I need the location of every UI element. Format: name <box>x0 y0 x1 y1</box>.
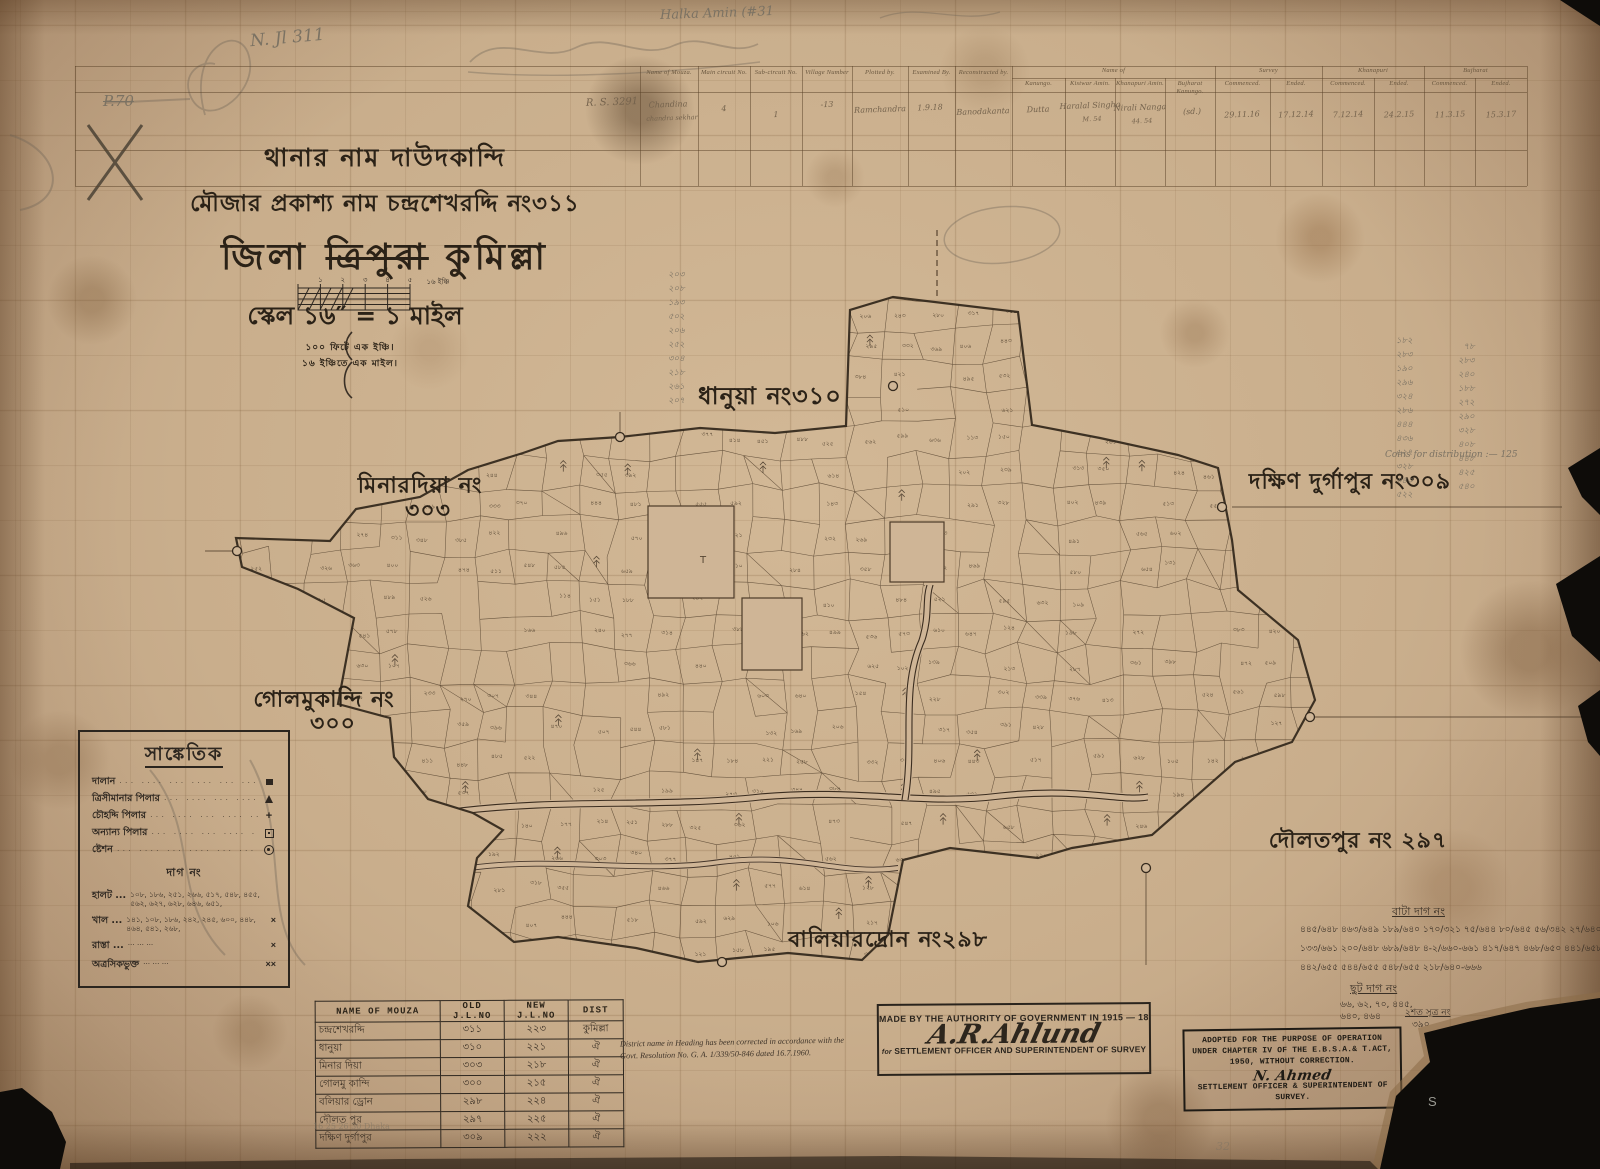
form-column-header: Sub-circuit No. <box>750 69 802 77</box>
form-entry: 24.2.15 <box>1384 109 1415 119</box>
form-column-header: Main circuit No. <box>698 69 750 77</box>
form-entry: 1 <box>773 110 778 119</box>
pencil-column-center: ২০৩২০৮১৯৩৫০২২০৬২৫২৩০৪২১৮২৬১২০৭ <box>668 268 685 408</box>
correction-note: District name in Heading has been correc… <box>620 1033 910 1063</box>
form-column-header: Bujharat Kanungo. <box>1165 80 1215 96</box>
legend-box: সাঙ্কেতিক দালান··· ···· ··· ···· ··· ···… <box>78 730 290 988</box>
form-rule <box>1475 78 1476 186</box>
form-rule <box>75 66 76 186</box>
form-column-header: Commenced. <box>1424 80 1475 88</box>
form-rule <box>1065 78 1066 186</box>
bata-dag-row: ১৩৩/৬৬১ ২০০/৬৪৮ ৬৮৯/৬৪৮ ৪-২/৬৬০-৬৬১ ৪১৭/… <box>1300 941 1600 956</box>
form-group-header: Survey <box>1215 67 1322 75</box>
title-block: থানার নাম দাউদকান্দি মৌজার প্রকাশ্য নাম … <box>175 138 595 371</box>
svg-text:৩: ৩ <box>363 276 368 284</box>
form-rule <box>1374 78 1375 186</box>
form-entry: 7.12.14 <box>1333 109 1364 119</box>
printers-row: 16 25 26 30 Dhaka <box>313 1122 390 1131</box>
svg-text:২: ২ <box>341 276 346 284</box>
form-entry: 29.11.16 <box>1224 109 1260 119</box>
form-group-header: Name of <box>1012 67 1215 75</box>
page-pencil-number: 32 <box>1216 1140 1230 1153</box>
form-rule <box>1270 78 1271 186</box>
legend-symbol-row: দালান··· ···· ··· ···· ··· ··· <box>92 775 276 789</box>
form-column-header: Reconstructed by. <box>955 69 1012 77</box>
form-column-header: Commenced. <box>1215 80 1270 88</box>
form-rule <box>698 66 699 186</box>
pencil-column-right-a: ১৮২২৮৩১৯০২৯৬৩২৪২৮৬৪৪৪৪৩৬৬২৭৩২৮৩৪৩৫২২ <box>1396 334 1413 502</box>
form-entry: 17.12.14 <box>1278 109 1314 119</box>
form-entry: Haralal Singha <box>1059 100 1120 111</box>
form-column-header: Ended. <box>1270 80 1322 88</box>
form-entry: 1.9.18 <box>917 103 943 113</box>
legend-symbol-row: ষ্টেশন··· ···· ··· ···· ··· ··· <box>92 843 276 857</box>
form-rule <box>640 66 641 186</box>
form-rule <box>802 66 803 186</box>
form-group-header: Khanapuri <box>1322 67 1424 75</box>
mouza-table-header: DIST <box>568 1000 623 1021</box>
svg-text:৪: ৪ <box>385 276 390 284</box>
form-entry: (sd.) <box>1183 107 1201 117</box>
form-entry: 11.3.15 <box>1435 109 1466 119</box>
legend-title: সাঙ্কেতিক <box>92 740 276 772</box>
form-entry: Chandina <box>648 99 687 109</box>
form-rule <box>75 92 1527 93</box>
legend-number-row: খাল ...১৪১, ১০৮, ১৮৬, ২৪২, ২৪৫, ৬০০, ৪৪৮… <box>92 915 276 933</box>
scale-note-2: ১৬ ইঞ্চিতে এক মাইল। <box>140 356 560 371</box>
bata-dag-row: ৪৪৫/৬৪৮ ৪৬৩/৬৪৯ ১৮৯/৬৪০ ১৭০/৩২১ ৭৫/৬৪৪ ৮… <box>1300 922 1600 937</box>
pencil-column-right-b: ৭৮২৮৩২৪০১৮৮২৭২২৯০৩২৮৪০৮৪৪৮৪২৫৫৪০ <box>1458 340 1475 494</box>
mouza-table-row: চন্দ্রশেখরদ্দি৩১১২২৩কুমিল্লা <box>315 1021 623 1041</box>
form-column-header: Kanungo. <box>1012 80 1065 88</box>
form-column-header: Khanapuri Amin. <box>1115 80 1165 88</box>
region-label: ধানুয়া নং৩১০ <box>698 378 842 418</box>
map-sheet: ১০০১৮৯২৭৮৩৬৭৫৪৫৬৩৪২৫২৩৪১৪৩০৫১৯৬০৮২২৬৪০৪৪… <box>0 0 1600 1169</box>
chhut-dag-row: ৬৪০, ৪৬৪ <box>1340 1009 1381 1024</box>
mouza-table-row: গোলমু কান্দি৩০০২১৫ঐ <box>316 1075 624 1095</box>
mouza-name: মৌজার প্রকাশ্য নাম চন্দ্রশেখরদ্দি নং৩১১ <box>175 185 595 224</box>
form-entry: 15.3.17 <box>1486 109 1517 119</box>
adoption-stamp: ADOPTED FOR THE PURPOSE OF OPERATION UND… <box>1182 1026 1402 1111</box>
mouza-table-row: বলিয়ার ড্রোন২৯৮২২৪ঐ <box>316 1093 624 1113</box>
legend-number-row: হালট ...১০৮, ১৮৬, ২৫১, ২৬৬, ৫১৭, ৫৪৮, ৪৫… <box>92 890 276 908</box>
plus-symbol: + <box>266 812 272 820</box>
p70-pencil-note: P.70 <box>103 92 134 110</box>
form-rule <box>750 66 751 186</box>
legend-symbol-row: চৌহদ্দি পিলার··· ···· ··· ···· ··· ···+ <box>92 809 276 823</box>
region-label: বালিয়ারদ্রোন নং২৯৮ <box>788 923 988 960</box>
mouza-table-row: ধানুয়া৩১০২২১ঐ <box>315 1039 623 1059</box>
halka-pencil-note: Halka Amin (#31 <box>660 4 774 23</box>
region-label: দক্ষিণ দুর্গাপুর নং৩০৯ <box>1249 465 1451 502</box>
form-column-header: Ended. <box>1374 80 1424 88</box>
form-column-header: Kistwar Amin. <box>1065 80 1115 88</box>
form-column-header: Ended. <box>1475 80 1527 88</box>
form-entry: M. 54 <box>1082 115 1101 124</box>
form-entry: Banodakanta <box>956 106 1010 117</box>
jl-pencil-note: N. Jl 311 <box>249 25 325 51</box>
region-label: দৌলতপুর নং ২৯৭ <box>1269 824 1448 861</box>
form-column-header: Commenced. <box>1322 80 1374 88</box>
form-column-header: Name of Mouza. <box>640 69 698 77</box>
authority-stamp: MADE BY THE AUTHORITY OF GOVERNMENT IN 1… <box>877 1002 1151 1076</box>
mouza-table-row: মিনার দিয়া৩০৩২১৮ঐ <box>315 1057 623 1077</box>
mouza-table-header: NAME OF MOUZA <box>315 1001 440 1023</box>
svg-text:৫: ৫ <box>408 276 413 284</box>
form-rule <box>908 66 909 186</box>
legend-number-row: অত্রসিকভুক্ত··· ··· ···×× <box>92 959 276 971</box>
form-group-header: Bujharat <box>1424 67 1527 75</box>
form-rule <box>1115 78 1116 186</box>
scale-bar: ১২৩৪৫১৬ ইঞ্চি <box>293 270 493 318</box>
form-entry: Ramchandra <box>854 104 906 115</box>
building-symbol <box>266 779 273 785</box>
form-column-header: Examined By. <box>908 69 955 77</box>
form-entry: 44. 54 <box>1132 117 1153 126</box>
legend-dag-header: দাগ নং <box>92 864 276 883</box>
sutra-note-value: ৩৯০ <box>1412 1017 1430 1032</box>
form-column-header: Village Number <box>802 69 852 77</box>
svg-text:১: ১ <box>318 276 323 284</box>
form-entry: Dutta <box>1026 105 1049 115</box>
legend-symbol-row: ত্রিসীমানার পিলার··· ···· ··· ···· ··· ·… <box>92 792 276 806</box>
region-label: ৩০৩ <box>405 494 451 531</box>
settlement-officer-signature: A.R.Ahlund <box>875 1018 1153 1051</box>
bata-dag-header: বাটা দাগ নং <box>1392 903 1445 922</box>
form-entry: 4 <box>721 104 726 113</box>
scale-note-1: ১০০ ফিটে এক ইঞ্চি। <box>140 340 560 355</box>
mouza-table-header: NEW J.L.NO <box>504 1000 568 1021</box>
form-ref-no: R. S. 3291 <box>586 96 639 109</box>
triangle-symbol <box>265 795 273 803</box>
form-rule <box>955 66 956 186</box>
sqdot-symbol <box>265 829 274 838</box>
form-entry: Nirali Nanga <box>1114 102 1167 113</box>
form-column-header: Plotted by. <box>852 69 908 77</box>
form-rule <box>852 66 853 186</box>
mouza-table-header: OLD J.L.NO <box>440 1000 504 1021</box>
scale-bar-right-label: ১৬ ইঞ্চি <box>426 278 449 286</box>
form-entry: -13 <box>820 100 833 109</box>
bata-dag-row: ৪৪২/৬৫৫ ৫৪৪/৬৫৫ ৫৪৮/৬৫৫ ২১৮/৬৪০-৬৬৬ <box>1300 960 1482 975</box>
form-rule <box>1527 66 1528 186</box>
circledot-symbol <box>264 845 274 855</box>
legend-symbol-row: অন্যান্য পিলার··· ···· ··· ···· ··· ··· <box>92 826 276 840</box>
region-label: ৩০০ <box>310 707 356 744</box>
legend-number-row: রাস্তা ...··· ··· ···× <box>92 940 276 952</box>
mouza-table-row: দক্ষিণ দুর্গাপুর৩০৯২২২ঐ <box>316 1129 624 1149</box>
form-entry: chandra sekhar <box>646 113 698 123</box>
thana-name: থানার নাম দাউদকান্দি <box>175 138 595 181</box>
